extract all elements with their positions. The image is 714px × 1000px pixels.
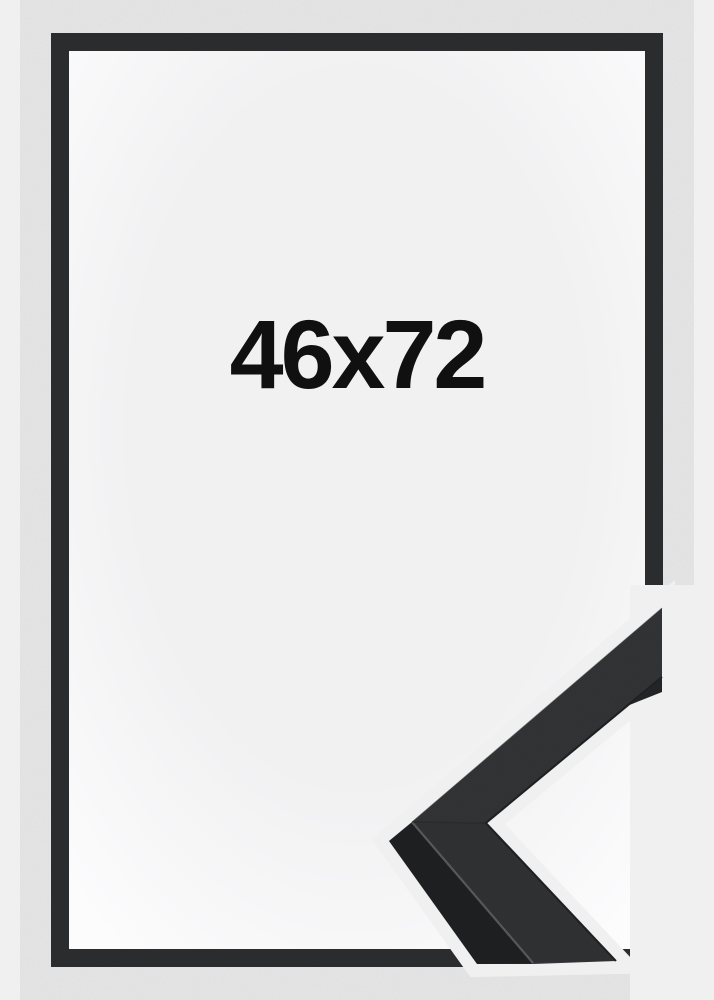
- size-label: 46x72: [51, 306, 663, 403]
- product-image: 46x72: [0, 0, 714, 1000]
- frame-preview-graphic: [0, 0, 714, 1000]
- frame-interior: [69, 51, 645, 949]
